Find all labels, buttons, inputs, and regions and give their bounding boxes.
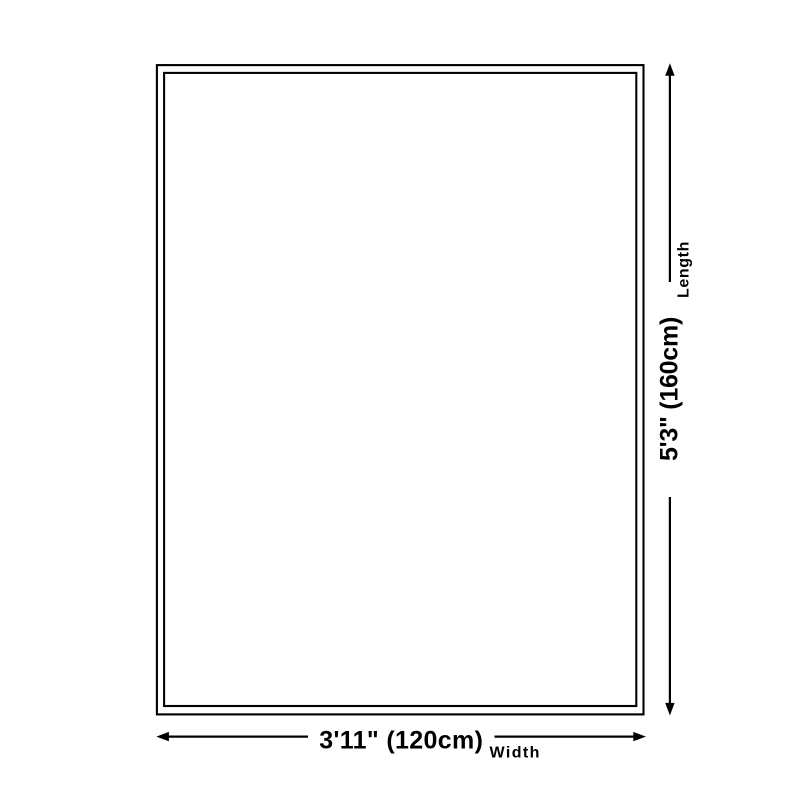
svg-text:5'3" (160cm): 5'3" (160cm) xyxy=(656,317,684,461)
svg-text:3'11" (120cm): 3'11" (120cm) xyxy=(319,727,483,755)
svg-text:Width: Width xyxy=(490,745,541,762)
svg-text:Length: Length xyxy=(676,241,693,298)
